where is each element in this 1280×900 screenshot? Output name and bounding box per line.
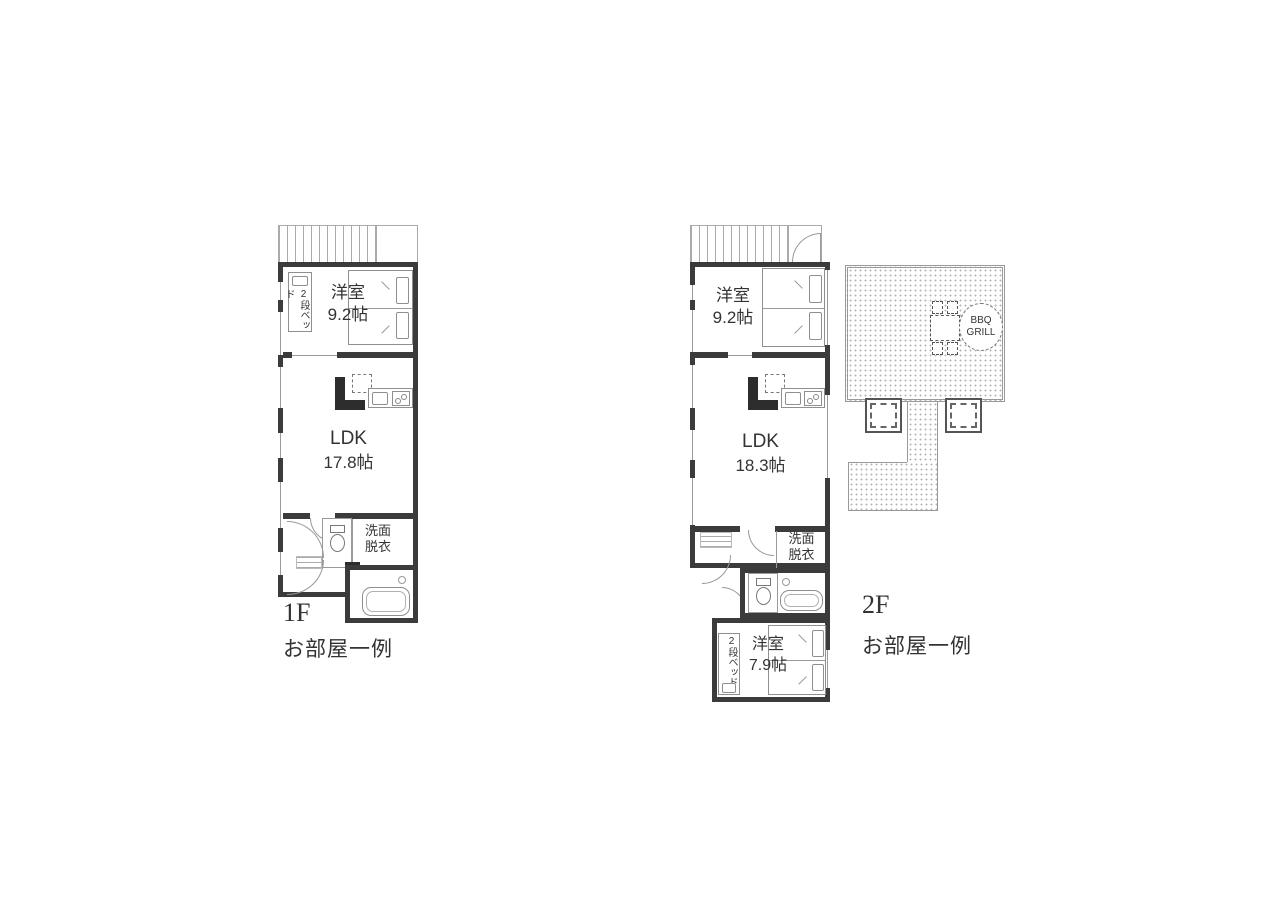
deck-chair — [947, 301, 958, 314]
bathtub-inner — [784, 594, 819, 607]
kitchen-counter-1f — [368, 388, 413, 408]
pillow — [292, 276, 308, 286]
bbq-label-line2: GRILL — [967, 327, 996, 340]
kitchen-island-1f — [335, 400, 365, 410]
ldk-label-2f: LDK 18.3帖 — [718, 430, 803, 477]
toilet-icon — [756, 587, 771, 605]
bedroom-size-2f: 9.2帖 — [702, 307, 764, 329]
deck-chair — [932, 301, 943, 314]
floorplan-page: { "floor1": { "floor_label": "1F", "capt… — [0, 0, 1280, 900]
floor-plan-2f: 洋室 9.2帖 LDK 18.3帖 洗面 脱衣 — [690, 225, 840, 705]
interior-wall — [283, 513, 310, 519]
washroom-label-2f: 洗面 脱衣 — [778, 531, 825, 564]
pillow — [809, 312, 822, 340]
entry-step-1f — [296, 556, 322, 569]
burner — [807, 398, 813, 404]
sink-1f — [372, 392, 388, 405]
double-bed-2f — [762, 268, 825, 347]
pillow — [812, 664, 824, 691]
interior-wall — [283, 352, 292, 358]
window-segment — [825, 270, 830, 345]
window-segment — [690, 430, 695, 460]
interior-stairs-2f — [700, 532, 732, 548]
bedroom-name-2f: 洋室 — [702, 285, 764, 307]
bunk-bed-1f: 2段ベッド — [288, 272, 312, 332]
ldk-size-2f: 18.3帖 — [718, 455, 803, 477]
deck-chair — [932, 342, 943, 355]
burner — [813, 394, 819, 400]
caption-1f: お部屋一例 — [283, 633, 393, 663]
burner — [395, 398, 401, 404]
window-segment — [278, 552, 283, 575]
window-segment — [690, 365, 695, 408]
bathroom-1f — [345, 565, 418, 623]
bath-annex-2f — [740, 568, 830, 618]
bedroom2-label-2f: 洋室 7.9帖 — [740, 635, 796, 677]
deck-planter — [865, 398, 902, 433]
pillow — [396, 277, 409, 304]
floor2-label-group: 2F お部屋一例 — [862, 590, 1022, 670]
bathtub-inner — [366, 591, 406, 612]
stairs-hatch-2f — [691, 226, 789, 262]
wall-line — [776, 531, 777, 568]
wall-line — [352, 519, 353, 565]
deck-walkway — [848, 462, 938, 511]
deck-planter — [945, 398, 982, 433]
blanket-fold — [794, 280, 802, 288]
toilet-icon — [330, 534, 345, 552]
window-segment — [278, 312, 283, 355]
interior-wall — [695, 352, 728, 358]
ldk-label-1f: LDK 17.8帖 — [306, 427, 391, 474]
window-segment — [278, 482, 283, 528]
toilet-room-2f — [748, 573, 778, 613]
bbq-grill: BBQ GRILL — [959, 303, 1003, 351]
bathtub-2f — [780, 590, 823, 611]
floor-label-2f: 2F — [862, 590, 889, 620]
ldk-size-1f: 17.8帖 — [306, 452, 391, 474]
window-segment — [690, 310, 695, 352]
bedroom-name-1f: 洋室 — [312, 282, 384, 304]
washroom-line1-1f: 洗面 — [356, 523, 400, 539]
blanket-fold — [798, 634, 806, 642]
pillow — [722, 683, 736, 693]
interior-wall — [752, 352, 825, 358]
deck-table — [930, 315, 960, 341]
walkway-edge — [848, 462, 907, 463]
toilet-room-1f — [322, 518, 352, 568]
bunk-bed-label-2f: 2段ベッド — [719, 636, 739, 687]
washroom-line2-2f: 脱衣 — [778, 547, 825, 563]
exterior-stairs-1f — [278, 225, 418, 263]
stove-1f — [392, 391, 410, 406]
window-segment — [690, 478, 695, 525]
deck-walkway — [907, 402, 938, 464]
blanket-fold — [381, 325, 389, 333]
pillow — [812, 630, 824, 657]
caption-2f: お部屋一例 — [862, 630, 972, 660]
washroom-label-1f: 洗面 脱衣 — [356, 523, 400, 556]
window-segment — [825, 395, 830, 478]
toilet-icon — [330, 525, 345, 533]
bedroom-label-1f: 洋室 9.2帖 — [312, 282, 384, 326]
floor-label-1f: 1F — [283, 598, 310, 628]
bunk-bed-2f: 2段ベッド — [718, 633, 740, 695]
pillow — [809, 275, 822, 303]
shower-drain — [398, 576, 406, 584]
ldk-name-1f: LDK — [306, 427, 391, 452]
sliding-door — [728, 355, 752, 356]
window-segment — [278, 433, 283, 458]
bedroom2-name-2f: 洋室 — [740, 635, 796, 656]
deck-chair — [947, 342, 958, 355]
bunk-bed-label-1f: 2段ベッド — [289, 289, 311, 331]
blanket-fold — [798, 676, 806, 684]
toilet-icon — [756, 578, 771, 586]
washroom-line1-2f: 洗面 — [778, 531, 825, 547]
door-arc — [702, 555, 731, 584]
kitchen-island-2f — [748, 400, 778, 410]
bedroom2-size-2f: 7.9帖 — [740, 656, 796, 677]
stove-2f — [804, 391, 822, 406]
bed-divider-line — [763, 308, 824, 309]
stairs-hatch-1f — [279, 226, 377, 262]
window-segment — [278, 367, 283, 408]
kitchen-counter-2f — [781, 388, 825, 408]
roof-deck-2f: BBQ GRILL — [845, 263, 1010, 518]
sliding-door — [292, 355, 337, 356]
bathtub-1f — [362, 587, 410, 616]
burner — [401, 394, 407, 400]
pillow — [396, 312, 409, 339]
bbq-label-line1: BBQ — [970, 315, 991, 328]
blanket-fold — [794, 325, 802, 333]
shower-drain — [782, 578, 790, 586]
ldk-name-2f: LDK — [718, 430, 803, 455]
interior-wall — [337, 352, 413, 358]
bedroom-size-1f: 9.2帖 — [312, 304, 384, 326]
sink-2f — [785, 392, 801, 405]
bedroom-label-2f: 洋室 9.2帖 — [702, 285, 764, 329]
window-segment — [690, 285, 695, 300]
floor-plan-1f: 2段ベッド 洋室 9.2帖 LDK 17.8帖 洗面 — [278, 225, 423, 670]
washroom-line2-1f: 脱衣 — [356, 539, 400, 555]
